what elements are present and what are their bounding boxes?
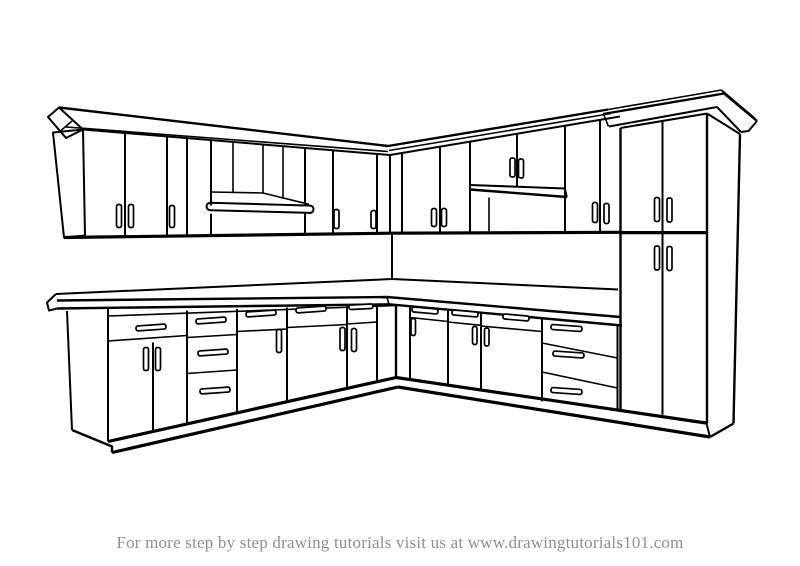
kitchen-cabinets-line-drawing (0, 0, 800, 566)
door-handle (170, 206, 175, 228)
door-handle (667, 198, 672, 222)
upper-cabinets-right (388, 110, 620, 234)
door-handle (117, 205, 122, 228)
door-handle (411, 319, 416, 336)
drawer-handle (136, 324, 166, 331)
base-left-side-panel (67, 311, 72, 430)
door-handle (510, 158, 515, 177)
door-handle (277, 330, 282, 353)
door-handle (442, 209, 447, 227)
door-handle (129, 205, 134, 228)
countertop (47, 234, 622, 326)
open-shelf-niche (470, 185, 567, 232)
toe-kick-left (112, 387, 398, 453)
drawer-handle (296, 306, 326, 313)
base-cabinets-left (67, 304, 398, 452)
drawer-handle (198, 349, 228, 356)
drawer-handle (551, 387, 582, 394)
pantry-crown-ridge (603, 94, 724, 115)
drawer-handle (246, 310, 276, 317)
door-handle (593, 203, 598, 223)
drawer-handle (503, 314, 529, 321)
countertop-left-end (47, 294, 57, 311)
range-hood-niche (207, 140, 314, 235)
door-handle (352, 329, 357, 352)
drawer-handle (196, 317, 226, 324)
drawer-handle (553, 351, 584, 358)
cabinet-handles (117, 158, 673, 395)
crown-molding-right-ridge (388, 110, 608, 147)
door-handle (604, 204, 609, 224)
drawer-handle (349, 304, 373, 310)
drawer-handle (200, 387, 230, 394)
door-handle (655, 246, 660, 270)
door-handle (156, 348, 161, 371)
upper-left-side-panel (53, 130, 85, 238)
door-handle (340, 328, 345, 351)
door-handle (667, 247, 672, 271)
footer-caption: For more step by step drawing tutorials … (0, 533, 800, 553)
drawing-canvas: For more step by step drawing tutorials … (0, 0, 800, 566)
door-handle (519, 159, 524, 178)
door-handle (144, 348, 149, 371)
door-handle (655, 198, 660, 222)
pantry-side-edge (734, 134, 741, 424)
hood-shelf-bar (207, 203, 314, 213)
drawer-handle (551, 324, 582, 331)
door-handle (473, 327, 478, 345)
drawer-handle (412, 307, 438, 314)
door-handle (432, 209, 437, 227)
drawer-handle (452, 310, 478, 317)
door-handle (485, 328, 490, 346)
pantry-cabinet (603, 90, 757, 437)
door-handle (371, 211, 376, 229)
door-handle (334, 210, 339, 229)
